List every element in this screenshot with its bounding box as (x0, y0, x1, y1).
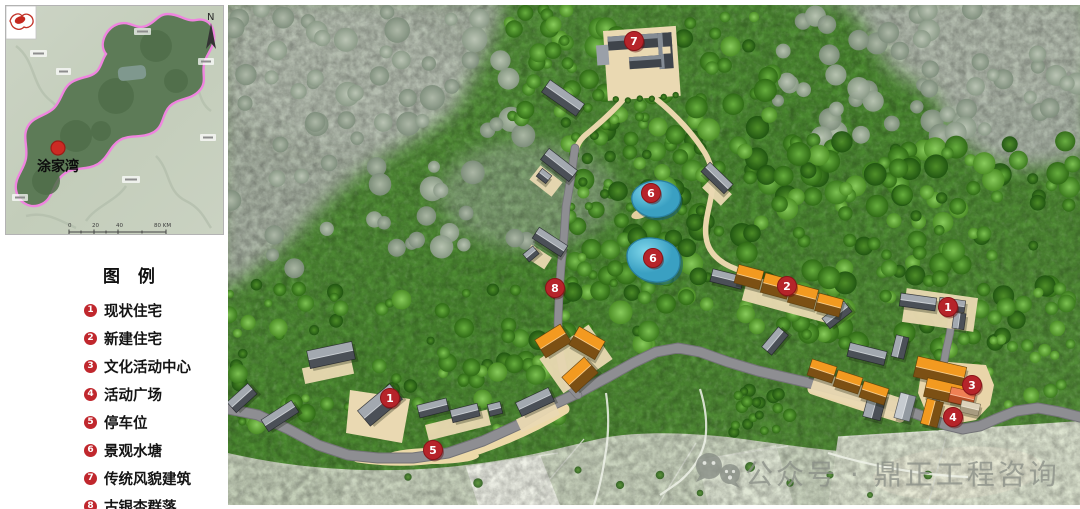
svg-text:1: 1 (386, 392, 394, 405)
tree (847, 77, 870, 100)
tree (731, 421, 740, 430)
tree (297, 295, 314, 312)
tree (428, 161, 440, 173)
tree (369, 173, 392, 196)
tree (829, 102, 844, 117)
tree (320, 397, 334, 411)
inset-map-svg: 涂家湾 N 0 20 40 80 KM (6, 6, 223, 234)
tree (910, 210, 921, 221)
tree (818, 266, 841, 289)
tree (473, 478, 483, 488)
tree (913, 30, 931, 48)
tree (433, 183, 448, 198)
tree (633, 157, 645, 169)
tree (380, 5, 394, 19)
tree (616, 481, 624, 489)
tree (690, 268, 708, 286)
screenshot-stage: 涂家湾 N 0 20 40 80 KM (0, 0, 1080, 509)
tree (1024, 91, 1037, 104)
tree (889, 159, 908, 178)
tree (1058, 295, 1076, 313)
tree (864, 163, 887, 186)
legend-item-label: 新建住宅 (104, 328, 162, 349)
tree (737, 144, 752, 159)
tree (1007, 341, 1018, 352)
tree (649, 118, 668, 137)
tree (490, 50, 510, 70)
tree (266, 249, 279, 262)
tree (1055, 131, 1075, 151)
tree (801, 329, 812, 340)
tree (881, 249, 892, 260)
tree (910, 100, 923, 113)
svg-text:6: 6 (649, 252, 657, 265)
tree (380, 45, 393, 58)
legend-item: 1现状住宅 (84, 300, 230, 321)
tree (607, 260, 623, 276)
legend-item-number: 4 (84, 388, 97, 401)
tree (604, 151, 615, 162)
tree (577, 187, 589, 199)
tree (469, 9, 489, 29)
tree (1066, 339, 1076, 349)
tree (754, 79, 777, 102)
tree (678, 289, 694, 305)
tree (958, 333, 970, 345)
tree (666, 125, 686, 145)
inset-lake (117, 65, 146, 82)
tree (755, 411, 764, 420)
legend-item: 2新建住宅 (84, 328, 230, 349)
legend-item-number: 6 (84, 444, 97, 457)
tree (273, 283, 286, 296)
tree (635, 112, 644, 121)
legend-item-number: 2 (84, 332, 97, 345)
svg-text:5: 5 (429, 444, 437, 457)
tree (526, 74, 541, 89)
tree (577, 262, 592, 277)
tree (454, 318, 474, 338)
svg-text:N: N (207, 12, 214, 23)
legend-items: 1现状住宅2新建住宅3文化活动中心4活动广场5停车位6景观水塘7传统风貌建筑8古… (84, 300, 230, 509)
tree (372, 359, 387, 374)
tree (922, 60, 939, 77)
tree (818, 15, 837, 34)
inset-place-marker (51, 141, 65, 155)
tree (977, 283, 990, 296)
legend-item-number: 5 (84, 416, 97, 429)
tree (819, 44, 840, 65)
tree (886, 213, 901, 228)
tree (578, 253, 587, 262)
tree (808, 145, 829, 166)
tree (776, 44, 791, 59)
tree (338, 111, 356, 129)
legend-item-number: 1 (84, 304, 97, 317)
tree (309, 325, 319, 335)
tree (843, 234, 856, 247)
tree (265, 70, 279, 84)
tree (488, 362, 507, 381)
tree (350, 132, 363, 145)
tree (370, 66, 389, 85)
tree (1030, 352, 1041, 363)
inset-map: 涂家湾 N 0 20 40 80 KM (5, 5, 224, 235)
tree (705, 61, 719, 75)
tree (334, 28, 358, 52)
main-map: 7668213415 公众号 · 鼎正工程咨询 (228, 5, 1080, 505)
tree (457, 238, 470, 251)
tree (420, 85, 445, 110)
tree (1030, 195, 1046, 211)
tree (638, 321, 659, 342)
tree (237, 96, 252, 111)
legend-item: 7传统风貌建筑 (84, 468, 230, 489)
tree (771, 196, 788, 213)
tree (392, 51, 411, 70)
tree (825, 64, 846, 85)
tree (391, 373, 401, 383)
svg-text:8: 8 (551, 282, 559, 295)
svg-text:7: 7 (630, 35, 638, 48)
tree (884, 116, 900, 132)
svg-text:80 KM: 80 KM (154, 223, 171, 229)
tree (430, 235, 453, 258)
tree (1050, 321, 1066, 337)
svg-text:6: 6 (647, 187, 655, 200)
tree (422, 56, 436, 70)
tree (233, 329, 242, 338)
tree (294, 169, 309, 184)
tree (506, 229, 525, 248)
tree (444, 79, 459, 94)
legend-item-number: 8 (84, 500, 97, 509)
tree (956, 99, 977, 120)
tree (545, 16, 561, 32)
tree (377, 216, 391, 230)
tree (578, 177, 587, 186)
tree (913, 246, 927, 260)
tree (987, 69, 1000, 82)
tree (1043, 384, 1057, 398)
tree (292, 282, 306, 296)
tree (1056, 379, 1067, 390)
tree (600, 189, 610, 199)
tree (459, 206, 474, 221)
tree (291, 83, 307, 99)
tree (614, 213, 629, 228)
tree (321, 155, 338, 172)
tree (1050, 351, 1059, 360)
tree (787, 142, 811, 166)
tree (624, 285, 640, 301)
tree (498, 68, 520, 90)
tree (742, 39, 755, 52)
tree (235, 64, 256, 85)
tree (978, 122, 991, 135)
tree (737, 305, 755, 323)
tree (462, 52, 479, 69)
tree (489, 117, 503, 131)
tree (517, 5, 533, 21)
tree (574, 466, 581, 473)
legend-item: 8古银杏群落 (84, 496, 230, 509)
tree (891, 42, 909, 60)
tree (700, 297, 714, 311)
svg-text:1: 1 (944, 301, 952, 314)
legend: 图 例 1现状住宅2新建住宅3文化活动中心4活动广场5停车位6景观水塘7传统风貌… (84, 262, 230, 509)
svg-text:40: 40 (116, 223, 123, 229)
tree (772, 388, 785, 401)
legend-item-label: 传统风貌建筑 (104, 468, 191, 489)
tree (1023, 387, 1039, 403)
tree (866, 195, 889, 218)
tree (986, 250, 997, 261)
tree (462, 358, 480, 376)
tree (752, 397, 762, 407)
tree (228, 364, 248, 384)
locator-minimap (6, 6, 36, 39)
tree (656, 471, 665, 480)
tree (265, 225, 284, 244)
tree (783, 409, 796, 422)
tree (608, 181, 628, 201)
tree (972, 53, 989, 70)
tree (408, 232, 425, 249)
svg-text:3: 3 (968, 379, 976, 392)
tree (238, 417, 246, 425)
tree (399, 89, 417, 107)
tree (505, 20, 522, 37)
tree (878, 22, 899, 43)
tree (545, 42, 562, 59)
tree (760, 426, 769, 435)
tree (609, 300, 633, 324)
tree (1027, 173, 1038, 184)
tree (505, 354, 524, 373)
svg-text:4: 4 (949, 411, 957, 424)
tree (461, 161, 485, 185)
tree (272, 7, 294, 29)
tree (932, 270, 949, 287)
tree (561, 117, 571, 127)
tree (462, 27, 488, 53)
tree (238, 349, 248, 359)
tree (1009, 151, 1028, 170)
tree (251, 279, 263, 291)
tree (934, 225, 945, 236)
tree (879, 290, 891, 302)
tree (743, 224, 761, 242)
tree (1062, 199, 1075, 212)
tree (686, 214, 703, 231)
tree (675, 29, 694, 48)
tree (685, 96, 707, 118)
tree (966, 77, 985, 96)
tree (831, 131, 852, 152)
tree (722, 93, 744, 115)
tree (966, 181, 980, 195)
legend-item-label: 古银杏群落 (104, 496, 177, 509)
tree (761, 107, 777, 123)
tree (867, 237, 880, 250)
tree (601, 240, 621, 260)
tree (920, 80, 938, 98)
tree (623, 145, 638, 160)
tree (1028, 241, 1038, 251)
tree (852, 126, 870, 144)
tree (241, 315, 256, 330)
tree (435, 303, 450, 318)
tree (734, 391, 743, 400)
tree (320, 222, 334, 236)
tree (305, 112, 325, 132)
tree (793, 227, 805, 239)
tree (404, 473, 411, 480)
tree (949, 198, 966, 215)
tree (905, 265, 925, 285)
tree (942, 239, 965, 262)
tree (936, 192, 947, 203)
tree (284, 258, 304, 278)
tree (487, 284, 499, 296)
tree (417, 206, 437, 226)
legend-item: 4活动广场 (84, 384, 230, 405)
main-map-svg: 7668213415 公众号 · 鼎正工程咨询 (228, 5, 1080, 505)
tree (684, 17, 696, 29)
tree (610, 279, 618, 287)
tree (404, 379, 418, 393)
tree (269, 170, 286, 187)
tree (585, 202, 593, 210)
tree (714, 226, 725, 237)
legend-item-label: 文化活动中心 (104, 356, 191, 377)
watermark-text: 公众号 · 鼎正工程咨询 (745, 458, 1060, 491)
tree (526, 365, 546, 385)
tree (977, 226, 992, 241)
tree (582, 153, 593, 164)
tree (624, 132, 639, 147)
legend-item-label: 景观水塘 (104, 440, 162, 461)
tree (388, 239, 406, 257)
tree (329, 314, 343, 328)
tree (736, 242, 758, 264)
tree (973, 152, 995, 174)
tree (989, 336, 997, 344)
tree (392, 290, 412, 310)
tree (773, 403, 784, 414)
tree (709, 28, 721, 40)
tree (924, 154, 948, 178)
tree (893, 185, 913, 205)
tree (1033, 288, 1043, 298)
tree (562, 57, 574, 69)
tree (720, 12, 731, 23)
tree (638, 291, 652, 305)
legend-item: 3文化活动中心 (84, 356, 230, 377)
svg-text:2: 2 (783, 280, 791, 293)
tree (273, 137, 289, 153)
tree (838, 206, 852, 220)
tree (1059, 76, 1074, 91)
tree (720, 36, 740, 56)
watermark: 公众号 · 鼎正工程咨询 (696, 453, 1060, 491)
tree (1040, 98, 1060, 118)
tree (867, 492, 873, 498)
tree (1021, 339, 1033, 351)
tree (654, 164, 670, 180)
legend-item-label: 现状住宅 (104, 300, 162, 321)
tree (697, 490, 704, 497)
tree (330, 293, 339, 302)
tree (920, 185, 934, 199)
tree (656, 294, 676, 314)
tree (991, 191, 1003, 203)
legend-item: 5停车位 (84, 412, 230, 433)
tree (1045, 302, 1058, 315)
tree (772, 425, 781, 434)
tree (803, 187, 822, 206)
tree (314, 30, 330, 46)
tree (881, 260, 898, 277)
tree (697, 118, 720, 141)
tree (269, 319, 287, 337)
tree (673, 149, 689, 165)
legend-item-label: 活动广场 (104, 384, 162, 405)
tree (1015, 296, 1032, 313)
tree (1002, 136, 1018, 152)
tree (839, 182, 853, 196)
legend-item-number: 7 (84, 472, 97, 485)
tree (267, 40, 287, 60)
tree (559, 36, 569, 46)
tree (642, 150, 652, 160)
tree (773, 166, 793, 186)
legend-item-number: 3 (84, 360, 97, 373)
tree (741, 396, 753, 408)
tree (579, 70, 599, 90)
tree (264, 299, 272, 307)
tree (462, 289, 471, 298)
svg-text:0: 0 (68, 223, 72, 229)
tree (592, 89, 604, 101)
tree (717, 58, 732, 73)
inset-place-label: 涂家湾 (37, 158, 79, 175)
legend-item: 6景观水塘 (84, 440, 230, 461)
tree (427, 337, 435, 345)
tree (1029, 46, 1046, 63)
tree (347, 85, 363, 101)
tree (307, 70, 324, 87)
tree (988, 310, 1002, 324)
legend-item-label: 停车位 (104, 412, 148, 433)
tree (374, 113, 393, 132)
tree (437, 347, 450, 360)
tree (333, 301, 348, 316)
tree (511, 123, 535, 147)
tree (510, 285, 521, 296)
tree (415, 114, 429, 128)
tree (749, 12, 759, 22)
tree (516, 101, 534, 119)
tree (848, 30, 869, 51)
tree (384, 17, 410, 43)
tree (743, 171, 757, 185)
legend-title: 图 例 (103, 262, 230, 287)
svg-text:20: 20 (92, 223, 99, 229)
tree (501, 329, 515, 343)
tree (445, 13, 458, 26)
